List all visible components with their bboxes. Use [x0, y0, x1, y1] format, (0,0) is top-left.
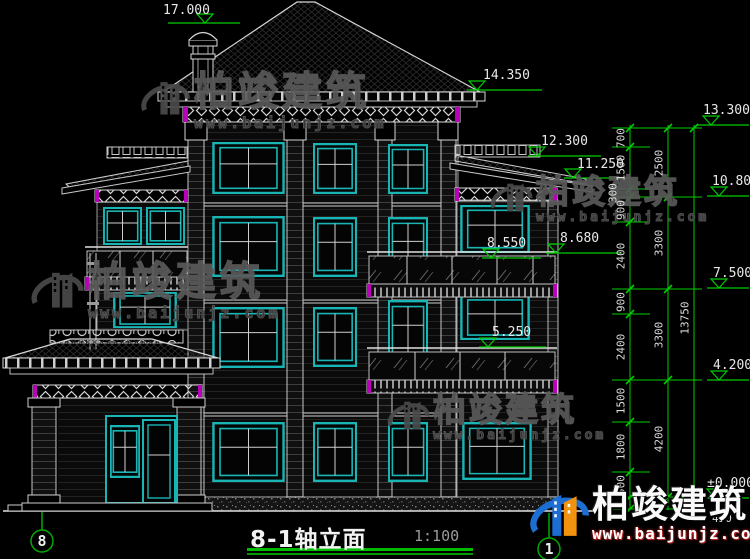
elev-5250: 5.250	[492, 325, 531, 340]
drawing-title: 8-1轴立面	[250, 520, 367, 554]
brand-logo-icon	[528, 486, 592, 550]
dim-900b: 900	[615, 292, 628, 312]
elevation-drawing-sheet: 17.000 14.350 13.300 12.300 11.250 10.80…	[0, 0, 750, 559]
wing-parapet-railing	[455, 145, 540, 157]
watermark-mid-left: 柏竣建筑 www.baijunjz.com	[28, 262, 281, 322]
porch	[3, 339, 220, 511]
elev-8550: 8.550	[487, 236, 526, 251]
elev-14350: 14.350	[483, 68, 530, 83]
balcony-5250	[367, 348, 557, 393]
watermark-name: 柏竣建筑	[194, 72, 387, 112]
dim-13750: 13750	[679, 301, 692, 334]
balcony-8550	[367, 252, 557, 297]
dim-700: 700	[615, 128, 628, 148]
watermark-top: 柏竣建筑 www.baijunjz.com	[138, 72, 387, 132]
brand-url: www.baijunjz.com	[592, 524, 750, 543]
axis-bubble-8: 8	[37, 532, 46, 550]
watermark-url: www.baijunjz.com	[433, 428, 606, 443]
porch-roof	[5, 339, 218, 358]
elev-17000: 17.000	[163, 3, 210, 18]
watermark-bottom: 柏竣建筑 www.baijunjz.com	[385, 393, 606, 443]
dim-2400b: 2400	[615, 334, 628, 361]
dim-3300: 3300	[653, 230, 666, 257]
watermark-name: 柏竣建筑	[88, 262, 281, 302]
elev-13300: 13.300	[703, 103, 750, 118]
watermark-url: www.baijunjz.com	[88, 304, 281, 322]
watermark-logo-icon	[488, 175, 536, 223]
elev-4200: 4.200	[713, 358, 750, 373]
elev-12300: 12.300	[541, 134, 588, 149]
entrance-door	[106, 416, 177, 503]
watermark-mid-right: 柏竣建筑 www.baijunjz.com	[488, 175, 709, 225]
dim-4200: 4200	[653, 426, 666, 453]
drawing-scale: 1:100	[414, 527, 459, 545]
dim-3300b: 3300	[653, 322, 666, 349]
porch-slab	[22, 503, 212, 511]
elev-7500: 7.500	[713, 266, 750, 281]
dim-2500: 2500	[653, 150, 666, 177]
brand-logo: 柏竣建筑 www.baijunjz.com	[528, 486, 750, 550]
dim-2400: 2400	[615, 243, 628, 270]
dim-1500b: 1500	[615, 388, 628, 415]
watermark-logo-icon	[138, 72, 194, 128]
dim-1500: 1500	[615, 155, 628, 182]
watermark-url: www.baijunjz.com	[194, 114, 387, 132]
watermark-logo-icon	[385, 393, 433, 441]
dim-1800: 1800	[615, 434, 628, 461]
watermark-logo-icon	[28, 262, 88, 322]
watermark-name: 柏竣建筑	[433, 393, 606, 426]
dim-900: 900	[615, 200, 628, 220]
leftwing-parapet-railing	[107, 147, 187, 158]
elev-8680: 8.680	[560, 231, 599, 246]
brand-name: 柏竣建筑	[592, 486, 750, 523]
elev-10800: 10.800	[712, 174, 750, 189]
